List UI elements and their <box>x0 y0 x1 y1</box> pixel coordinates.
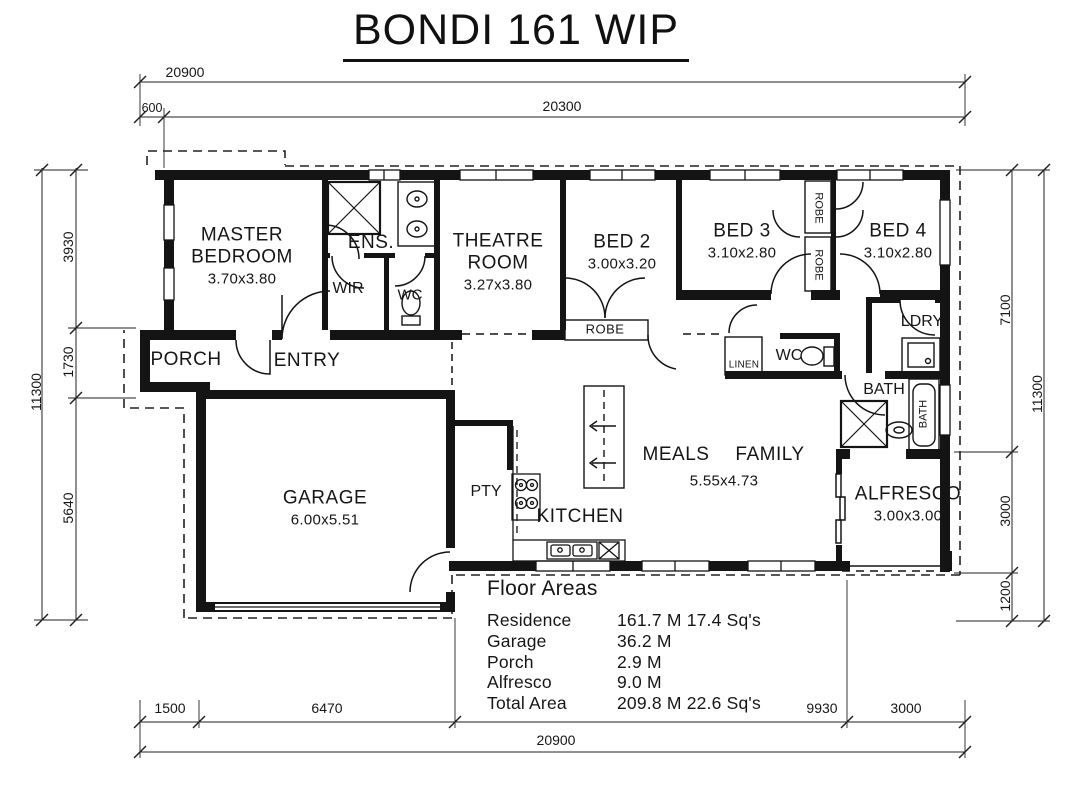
room-label-bed3: BED 3 3.10x2.80 <box>708 221 777 262</box>
doors <box>236 182 935 592</box>
room-name-bed4: BED 4 <box>864 221 933 243</box>
floor-area-value: 209.8 M 22.6 Sq's <box>617 693 761 714</box>
room-size-garage: 6.00x5.51 <box>283 512 367 529</box>
alfresco-outline <box>842 566 940 571</box>
room-label-garage: GARAGE 6.00x5.51 <box>283 488 367 529</box>
floor-area-row: Residence 161.7 M 17.4 Sq's <box>487 610 761 631</box>
bathtub-label: BATH <box>918 400 931 429</box>
room-label-ldry: LDRY <box>901 313 943 331</box>
room-label-theatre: THEATRE ROOM 3.27x3.80 <box>423 231 573 294</box>
meals-family-size: 5.55x4.73 <box>690 472 759 489</box>
dim-right-overall: 11300 <box>1029 375 1045 413</box>
room-label-meals: MEALS <box>643 444 710 466</box>
floor-area-value: 36.2 M <box>617 631 672 652</box>
room-name-alfresco: ALFRESCO <box>855 484 961 506</box>
room-name-master: MASTER BEDROOM <box>157 225 327 269</box>
dim-top-overall: 20900 <box>166 64 205 80</box>
bath-shower-icon <box>841 401 887 447</box>
room-size-bed4: 3.10x2.80 <box>864 245 933 262</box>
room-name-bed3: BED 3 <box>708 221 777 243</box>
robe-label-b: ROBE <box>812 249 825 280</box>
room-label-wc2: WC <box>776 347 803 365</box>
floor-area-value: 2.9 M <box>617 652 662 673</box>
room-label-pty: PTY <box>470 483 501 501</box>
floor-area-label: Porch <box>487 652 617 673</box>
sink-icon <box>547 542 619 559</box>
room-size-master: 3.70x3.80 <box>157 271 327 288</box>
room-label-ens: ENS. <box>348 232 394 254</box>
wc2-toilet-icon <box>801 347 834 366</box>
dim-left-seg1: 3930 <box>60 231 76 262</box>
room-label-bed2: BED 2 3.00x3.20 <box>588 232 657 273</box>
floor-areas-table: Floor Areas Residence 161.7 M 17.4 Sq's … <box>487 577 761 714</box>
dim-bottom-seg2: 6470 <box>311 700 342 716</box>
room-label-bed4: BED 4 3.10x2.80 <box>864 221 933 262</box>
dim-right-seg2: 3000 <box>997 495 1013 526</box>
room-label-alfresco: ALFRESCO 3.00x3.00 <box>855 484 961 525</box>
room-name-bed2: BED 2 <box>588 232 657 254</box>
floor-area-row: Total Area 209.8 M 22.6 Sq's <box>487 693 761 714</box>
dim-bottom-overall: 20900 <box>537 732 576 748</box>
room-size-theatre: 3.27x3.80 <box>423 277 573 294</box>
floorplan-page: BONDI 161 WIP MASTER BEDROOM 3.70x3.80 E… <box>0 0 1078 793</box>
room-label-linen: LINEN <box>729 359 759 371</box>
room-size-alfresco: 3.00x3.00 <box>855 508 961 525</box>
room-label-master: MASTER BEDROOM 3.70x3.80 <box>157 225 327 288</box>
dim-bottom-seg1: 1500 <box>154 700 185 716</box>
dim-left-seg3: 5640 <box>60 492 76 523</box>
floor-area-value: 9.0 M <box>617 672 662 693</box>
laundry-tub-icon <box>902 338 940 372</box>
dim-top-offset: 600 <box>142 101 163 115</box>
ensuite-shower-icon <box>328 182 380 234</box>
floor-area-row: Garage 36.2 M <box>487 631 761 652</box>
floor-area-label: Alfresco <box>487 672 617 693</box>
floor-area-value: 161.7 M 17.4 Sq's <box>617 610 761 631</box>
floor-area-label: Total Area <box>487 693 617 714</box>
floor-area-label: Garage <box>487 631 617 652</box>
room-name-garage: GARAGE <box>283 488 367 510</box>
bath-basin-icon <box>886 422 912 438</box>
kitchen-island <box>584 386 624 488</box>
dim-top-main: 20300 <box>543 98 582 114</box>
dim-left-seg2: 1730 <box>60 346 76 377</box>
floor-area-row: Porch 2.9 M <box>487 652 761 673</box>
floor-area-label: Residence <box>487 610 617 631</box>
floor-areas-title: Floor Areas <box>487 577 761 601</box>
dim-right-seg1: 7100 <box>997 294 1013 325</box>
room-label-entry: ENTRY <box>274 350 341 372</box>
room-label-porch: PORCH <box>150 349 221 371</box>
room-label-family: FAMILY <box>735 444 804 466</box>
robe-label-a: ROBE <box>812 192 825 223</box>
dim-right-seg3: 1200 <box>997 580 1013 611</box>
dim-bottom-seg4: 3000 <box>890 700 921 716</box>
kitchen-bench <box>513 426 625 561</box>
robe-label-bed2: ROBE <box>586 323 625 338</box>
room-label-wc1: WC <box>398 286 423 303</box>
room-label-kitchen: KITCHEN <box>537 506 624 528</box>
room-label-bath: BATH <box>863 381 904 399</box>
room-label-wir: WIR <box>332 280 363 298</box>
room-name-theatre: THEATRE ROOM <box>423 231 573 275</box>
room-size-bed2: 3.00x3.20 <box>588 256 657 273</box>
room-size-bed3: 3.10x2.80 <box>708 245 777 262</box>
page-title: BONDI 161 WIP <box>343 6 689 62</box>
dim-bottom-seg3: 9930 <box>806 700 837 716</box>
floor-area-row: Alfresco 9.0 M <box>487 672 761 693</box>
dim-left-overall: 11300 <box>28 373 44 411</box>
